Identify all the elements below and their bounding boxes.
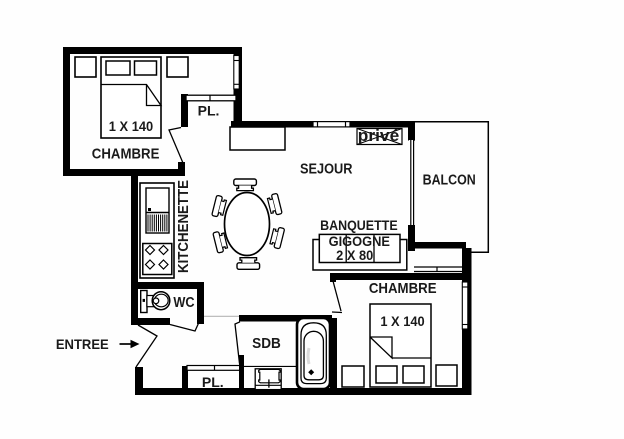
svg-text:1 X 140: 1 X 140 xyxy=(109,118,154,134)
svg-text:CHAMBRE: CHAMBRE xyxy=(92,146,160,163)
svg-text:BANQUETTE: BANQUETTE xyxy=(320,217,398,233)
svg-text:PL.: PL. xyxy=(198,103,220,119)
svg-text:PL.: PL. xyxy=(202,374,224,390)
svg-text:WC: WC xyxy=(173,295,195,311)
svg-text:SEJOUR: SEJOUR xyxy=(300,161,353,177)
svg-text:ENTREE: ENTREE xyxy=(56,336,109,352)
svg-text:CHAMBRE: CHAMBRE xyxy=(369,280,437,297)
svg-text:BALCON: BALCON xyxy=(423,173,476,189)
svg-text:SDB: SDB xyxy=(252,336,281,352)
svg-text:privé: privé xyxy=(358,127,399,145)
svg-text:KITCHENETTE: KITCHENETTE xyxy=(176,180,192,273)
svg-text:1 X 140: 1 X 140 xyxy=(380,313,424,329)
svg-text:2 X 80: 2 X 80 xyxy=(336,247,373,263)
